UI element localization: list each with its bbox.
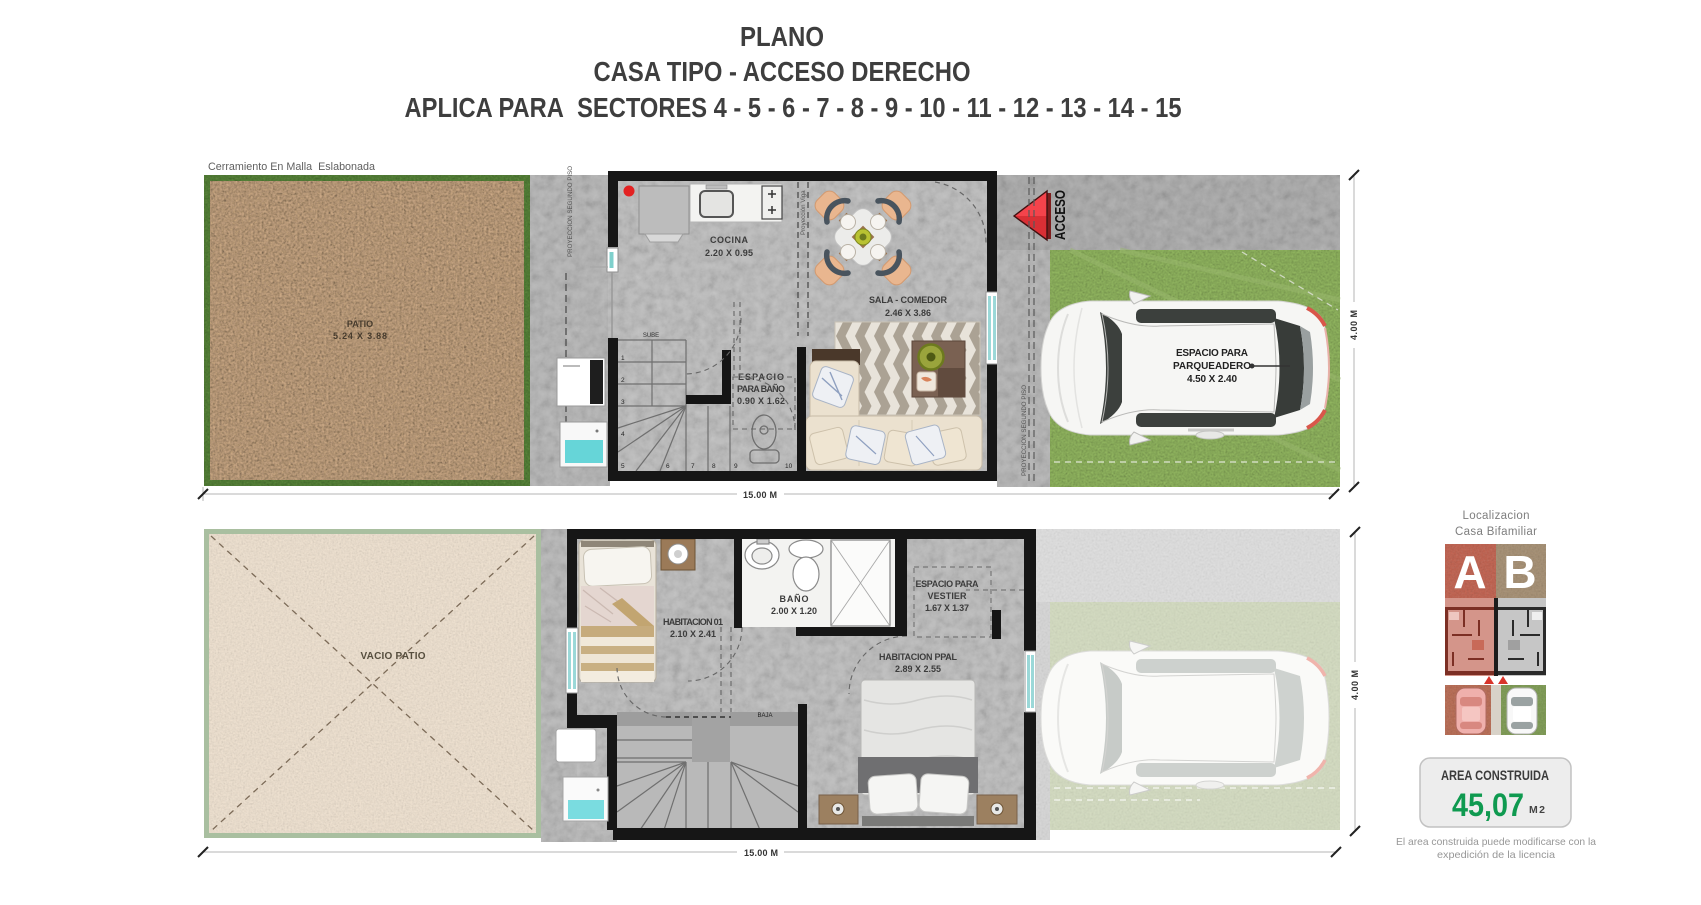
svg-text:APLICA PARA SECTORES 4 - 5 -: APLICA PARA SECTORES 4 - 5 - 6 - 7 - 8 -… [405, 92, 1182, 123]
svg-text:PARA BAÑO: PARA BAÑO [737, 384, 785, 394]
svg-text:ESPACIO PARA: ESPACIO PARA [916, 579, 980, 589]
svg-text:Localizacion: Localizacion [1463, 510, 1530, 522]
svg-text:8: 8 [712, 463, 716, 470]
svg-text:3: 3 [621, 399, 625, 406]
svg-text:4.50 X 2.40: 4.50 X 2.40 [1187, 374, 1237, 385]
svg-text:5.24 X 3.88: 5.24 X 3.88 [333, 331, 387, 341]
svg-text:SALA - COMEDOR: SALA - COMEDOR [869, 295, 948, 305]
svg-text:HABITACION PPAL: HABITACION PPAL [879, 652, 958, 662]
svg-text:VESTIER: VESTIER [928, 591, 968, 601]
svg-text:7: 7 [691, 463, 695, 470]
svg-text:BAJA: BAJA [757, 713, 772, 719]
svg-text:Casa Bifamiliar: Casa Bifamiliar [1455, 526, 1537, 538]
svg-text:VACIO PATIO: VACIO PATIO [361, 651, 426, 662]
svg-text:CASA TIPO - ACCESO DERECHO: CASA TIPO - ACCESO DERECHO [594, 56, 971, 87]
svg-text:COCINA: COCINA [710, 235, 749, 245]
svg-text:BAÑO: BAÑO [780, 594, 809, 604]
svg-text:5: 5 [621, 463, 625, 470]
svg-text:15.00 M: 15.00 M [744, 848, 778, 858]
svg-text:0.90 X 1.62: 0.90 X 1.62 [737, 396, 785, 406]
svg-text:15.00 M: 15.00 M [743, 490, 777, 500]
svg-text:Cerramiento En Malla Eslabona: Cerramiento En Malla Eslabonada [208, 161, 376, 173]
svg-text:6: 6 [666, 463, 670, 470]
svg-text:2.10 X 2.41: 2.10 X 2.41 [670, 629, 716, 639]
svg-text:2.00 X 1.20: 2.00 X 1.20 [771, 606, 817, 616]
svg-text:HABITACION 01: HABITACION 01 [663, 617, 723, 627]
svg-text:2.20 X 0.95: 2.20 X 0.95 [705, 248, 753, 258]
svg-text:El area construida puede modif: El area construida puede modificarse con… [1396, 836, 1596, 848]
svg-text:SUBE: SUBE [643, 333, 659, 339]
svg-text:A: A [1453, 546, 1486, 598]
svg-text:2: 2 [621, 377, 625, 384]
svg-text:PARQUEADERO: PARQUEADERO [1173, 361, 1251, 372]
svg-text:9: 9 [734, 463, 738, 470]
svg-text:4: 4 [621, 431, 625, 438]
svg-text:2.89 X 2.55: 2.89 X 2.55 [895, 664, 941, 674]
svg-text:PATIO: PATIO [347, 319, 373, 329]
svg-text:ESPACIO PARA: ESPACIO PARA [1176, 348, 1248, 359]
svg-text:PROYECCION SEGUNDO PISO: PROYECCION SEGUNDO PISO [1021, 385, 1028, 476]
svg-text:AREA CONSTRUIDA: AREA CONSTRUIDA [1441, 767, 1549, 783]
svg-text:10: 10 [785, 463, 793, 470]
svg-text:ACCESO: ACCESO [1052, 190, 1069, 240]
svg-text:2.46 X 3.86: 2.46 X 3.86 [885, 308, 931, 318]
svg-text:PLANO: PLANO [740, 21, 824, 52]
svg-text:4.00 M: 4.00 M [1350, 670, 1360, 700]
svg-text:expedición de la licencia: expedición de la licencia [1437, 849, 1555, 861]
svg-text:4.00 M: 4.00 M [1349, 310, 1359, 340]
svg-text:B: B [1503, 546, 1536, 598]
svg-text:45,07: 45,07 [1452, 787, 1524, 823]
svg-text:1: 1 [621, 355, 625, 362]
svg-text:Proyección Viga: Proyección Viga [800, 190, 807, 235]
svg-text:M2: M2 [1529, 804, 1545, 816]
svg-text:PROYECCION SEGUNDO PISO: PROYECCION SEGUNDO PISO [567, 166, 574, 257]
svg-text:1.67 X 1.37: 1.67 X 1.37 [925, 603, 969, 613]
